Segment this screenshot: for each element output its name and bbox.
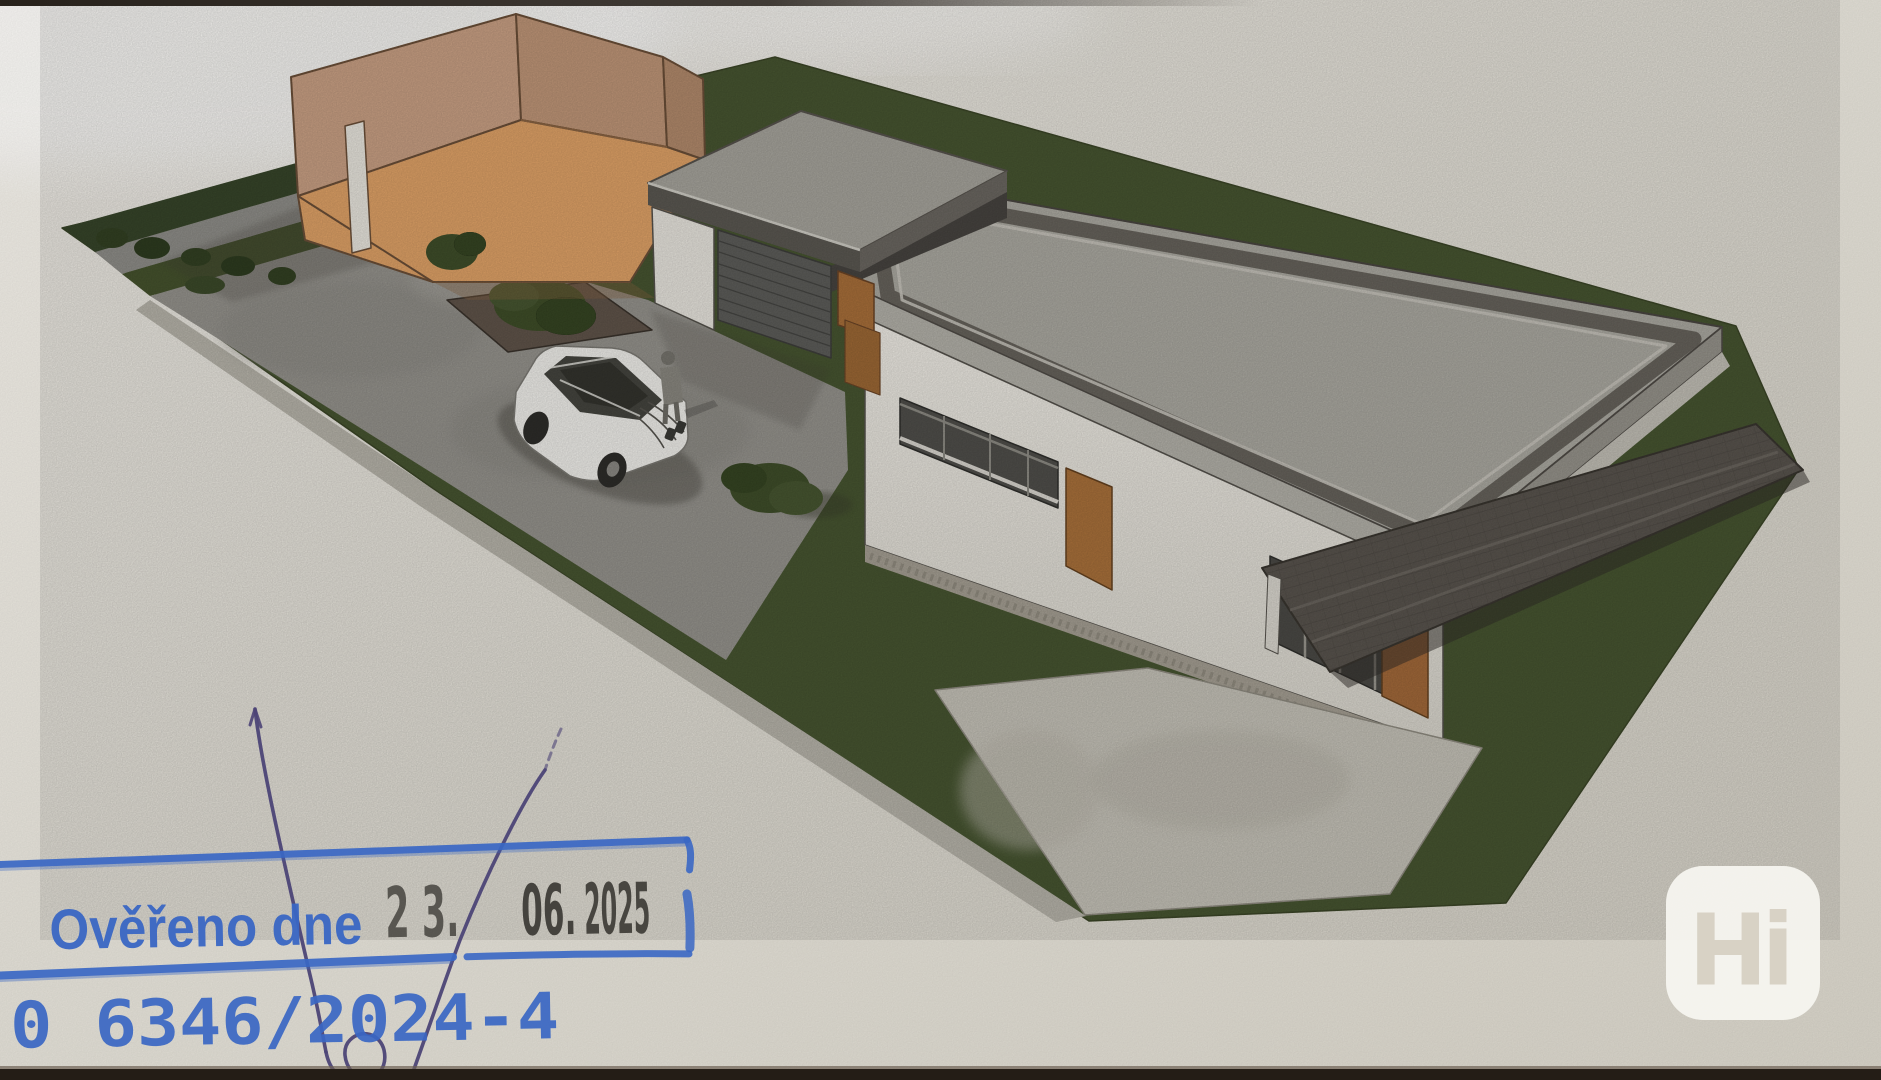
stamp-date-year: 2025 — [583, 868, 650, 951]
architectural-rendering: Ověřeno dne 2 3. 06. 2025 0 6346/2024-4 … — [0, 0, 1881, 1080]
photo-edge-top — [0, 0, 1400, 6]
stamp-date-month: 06. — [521, 869, 577, 952]
photo-edge-bottom — [0, 1069, 1881, 1080]
hi-logo-text: Hi — [1692, 893, 1792, 1005]
scanned-document-photo: Ověřeno dne 2 3. 06. 2025 0 6346/2024-4 … — [0, 0, 1881, 1080]
hi-watermark: Hi — [1666, 866, 1820, 1020]
stamp-registry-number: 0 6346/2024-4 — [10, 980, 560, 1064]
photo-edge-bottom-line — [0, 1066, 1881, 1069]
stamp-label: Ověřeno dne — [49, 893, 363, 962]
stamp-date-day: 2 3. — [385, 871, 460, 954]
